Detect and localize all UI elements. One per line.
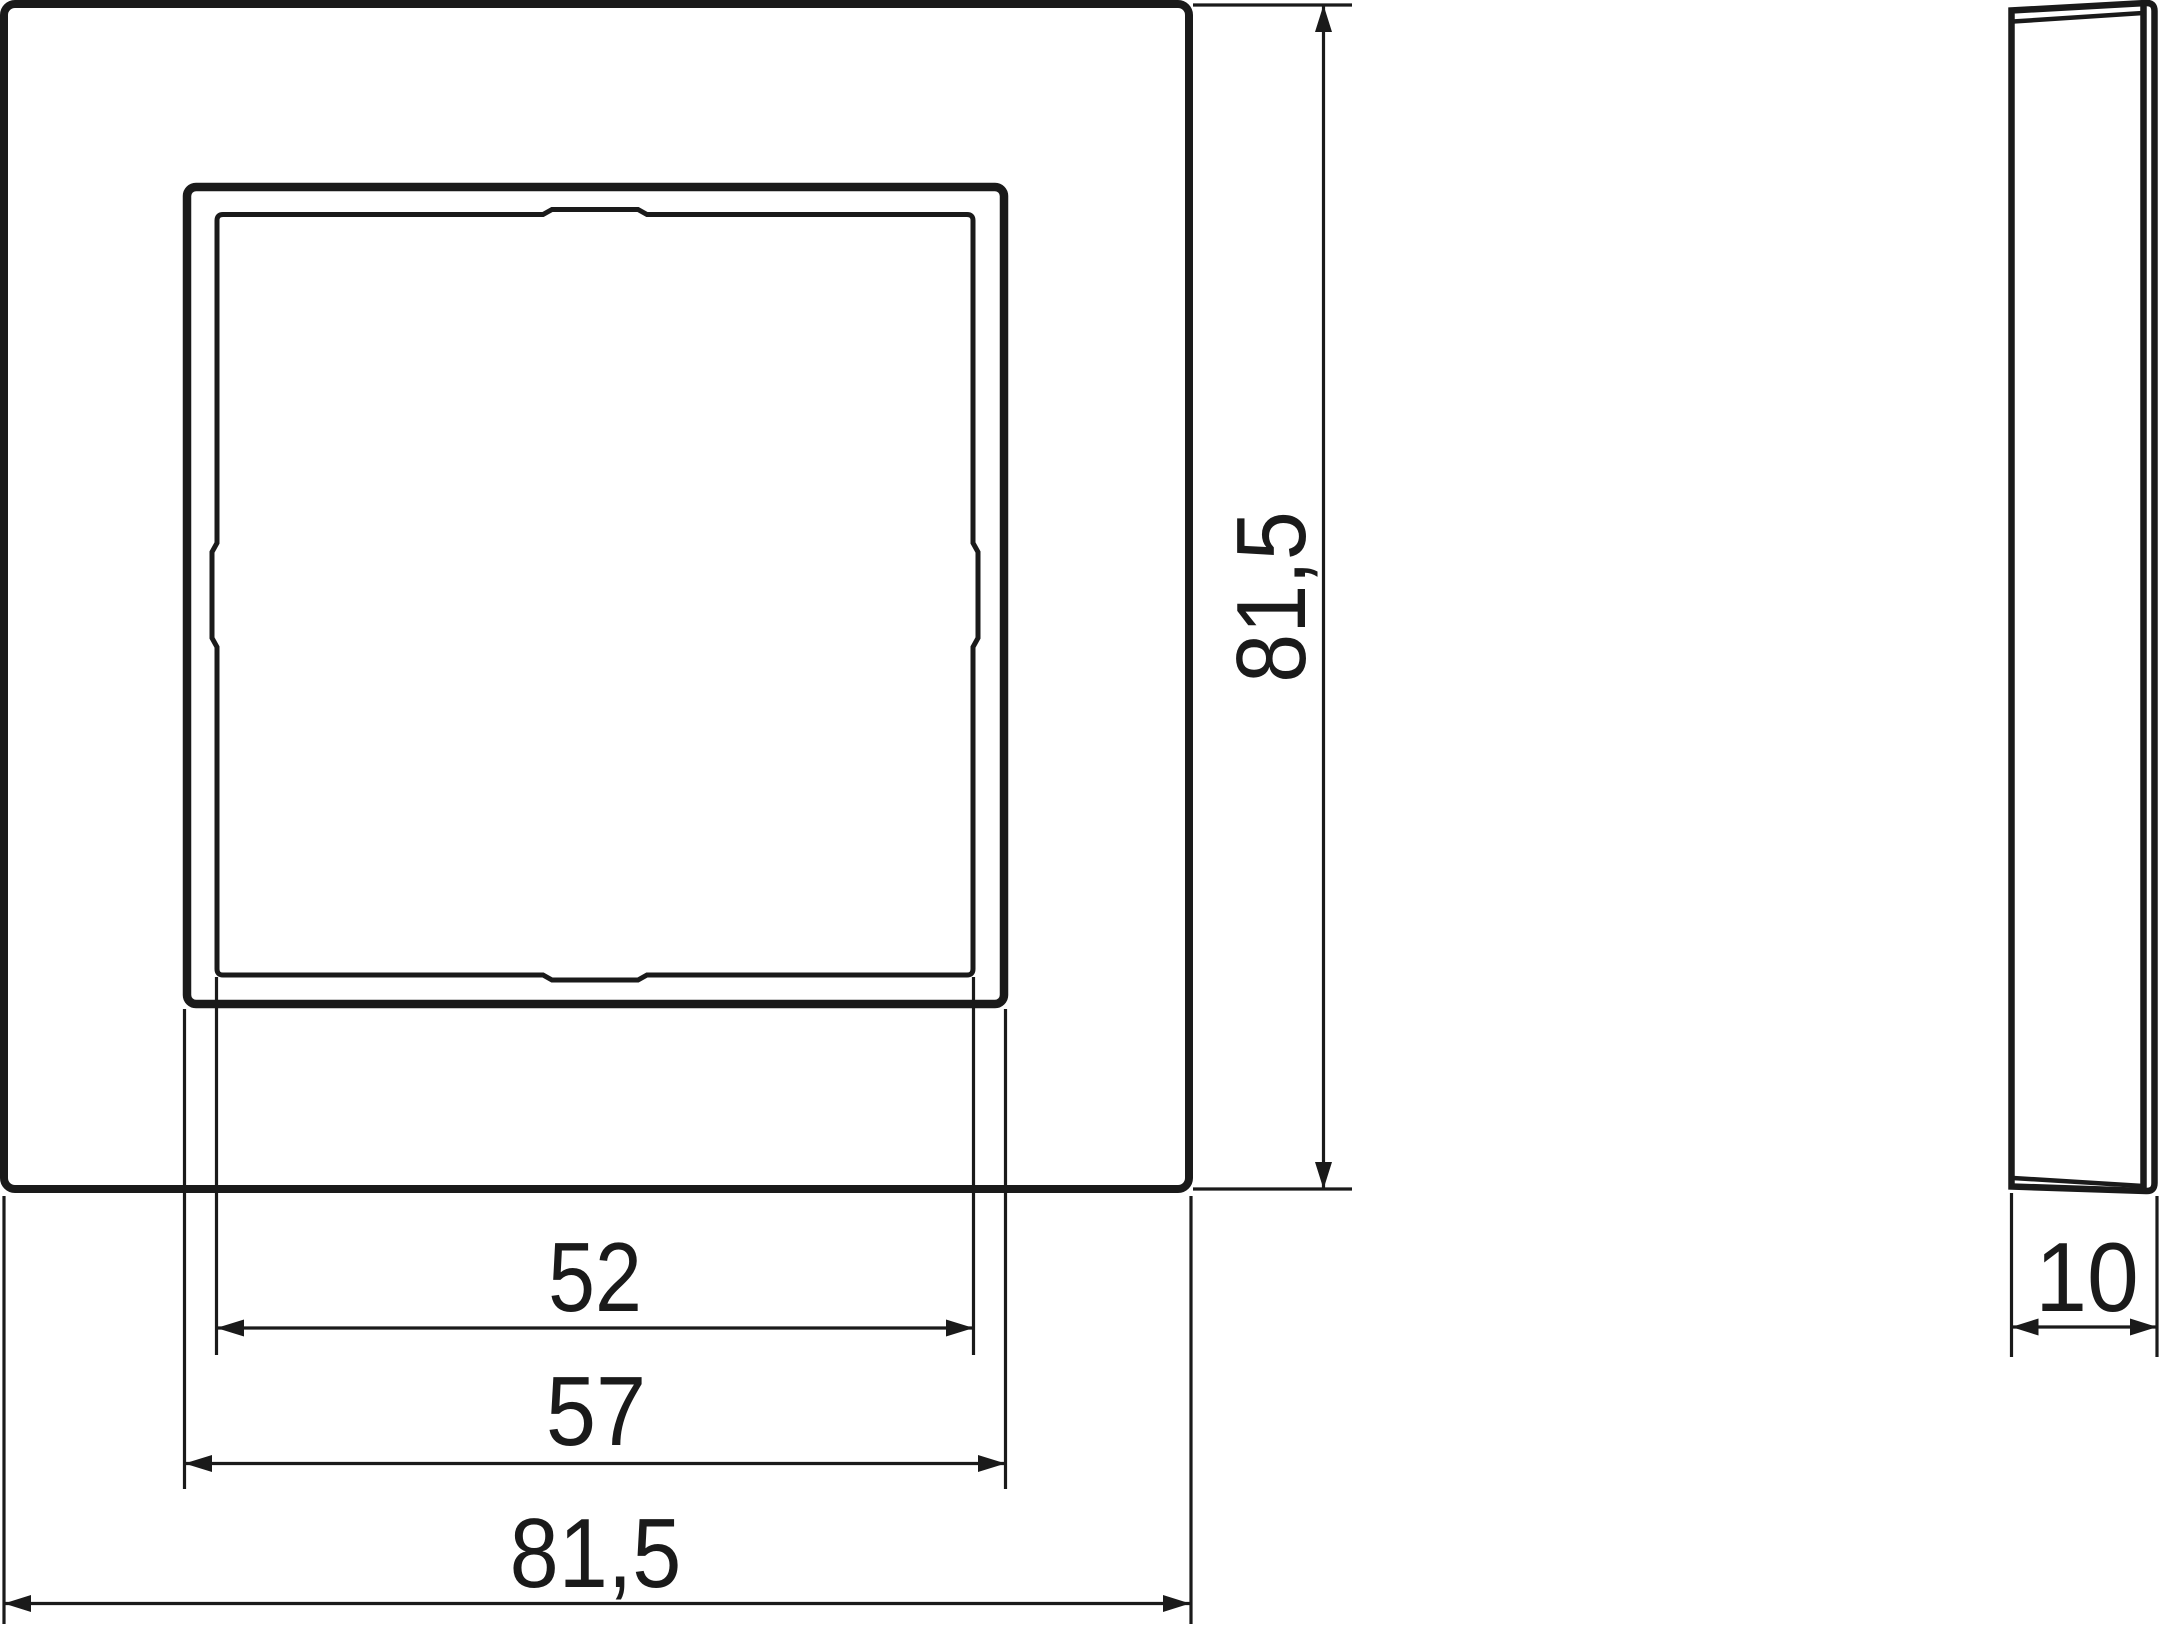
- svg-text:57: 57: [546, 1357, 646, 1466]
- svg-text:81,5: 81,5: [510, 1499, 682, 1608]
- svg-text:10: 10: [2035, 1223, 2139, 1333]
- svg-text:81,5: 81,5: [1217, 511, 1326, 683]
- svg-text:52: 52: [548, 1223, 642, 1332]
